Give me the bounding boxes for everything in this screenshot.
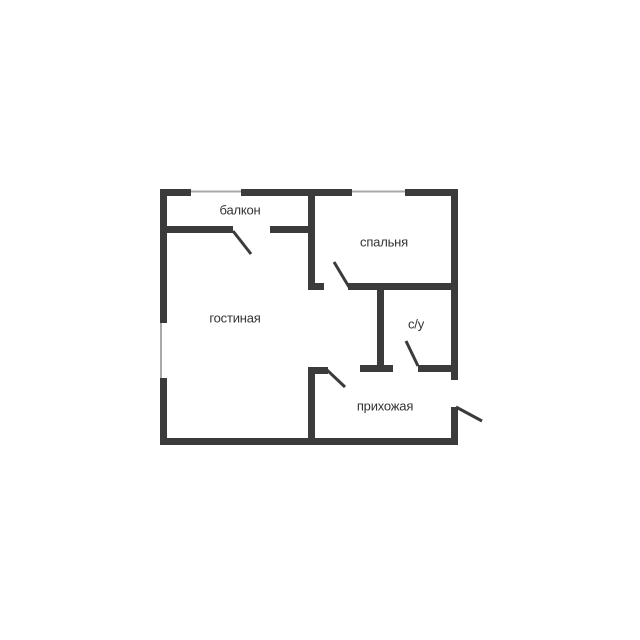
middle-wall-lower-stub xyxy=(308,367,328,374)
wall-top-segment-3 xyxy=(405,189,458,196)
bedroom-door xyxy=(334,262,349,287)
middle-wall-upper xyxy=(308,189,315,290)
wall-left-segment-2 xyxy=(160,378,167,445)
room-label-hallway: прихожая xyxy=(357,399,413,414)
room-label-bedroom: спальня xyxy=(360,235,408,250)
entrance-door xyxy=(456,407,482,421)
room-label-balcony: балкон xyxy=(219,203,260,218)
bathroom-left-wall xyxy=(377,290,384,365)
wall-top-segment-2 xyxy=(241,189,352,196)
room-label-living-room: гостиная xyxy=(209,311,260,326)
bedroom-bottom-wall xyxy=(348,283,458,290)
wall-right-segment-2 xyxy=(451,407,458,445)
wall-left-segment-1 xyxy=(160,189,167,323)
floor-plan-drawing xyxy=(0,0,640,640)
middle-wall-lower xyxy=(308,367,315,445)
bedroom-window xyxy=(352,191,405,193)
balcony-window xyxy=(191,191,241,193)
floor-plan: балкон спальня гостиная с/у прихожая xyxy=(0,0,640,640)
bathroom-bottom-wall-left xyxy=(360,365,393,372)
bathroom-bottom-wall-right xyxy=(418,365,458,372)
middle-wall-upper-stub xyxy=(308,283,324,290)
door-leaves xyxy=(233,231,482,421)
bathroom-door xyxy=(406,341,418,366)
living-room-window xyxy=(160,323,162,378)
balcony-wall-left xyxy=(160,226,233,233)
hallway-door xyxy=(327,370,345,387)
balcony-door xyxy=(233,231,251,254)
room-label-bathroom: с/у xyxy=(408,317,424,332)
